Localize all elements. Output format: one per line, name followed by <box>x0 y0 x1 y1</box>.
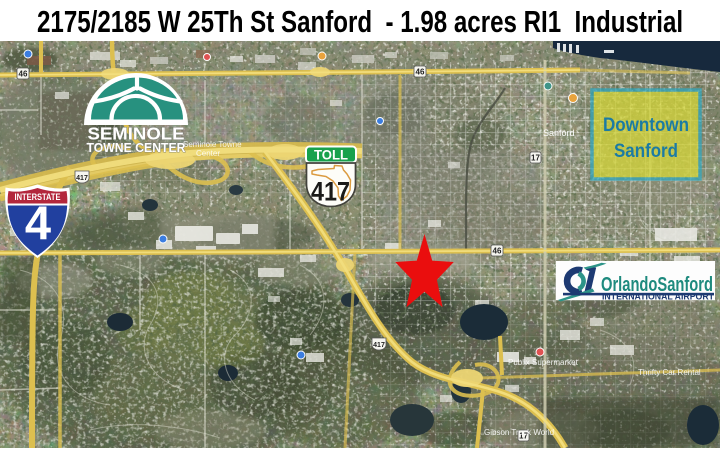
svg-text:4: 4 <box>25 196 51 249</box>
svg-text:Sanford: Sanford <box>543 128 575 138</box>
svg-text:46: 46 <box>19 70 28 79</box>
svg-text:INTERNATIONAL AIRPORT: INTERNATIONAL AIRPORT <box>602 292 714 302</box>
svg-text:17: 17 <box>531 154 540 163</box>
svg-text:TOLL: TOLL <box>314 148 348 163</box>
svg-text:46: 46 <box>416 68 425 77</box>
svg-text:Gibson Truck World: Gibson Truck World <box>484 428 554 437</box>
svg-text:Sanford: Sanford <box>614 140 678 162</box>
svg-text:417: 417 <box>373 342 385 349</box>
svg-text:Publix Supermarket: Publix Supermarket <box>508 358 579 367</box>
svg-text:46: 46 <box>493 247 502 256</box>
svg-text:Center: Center <box>196 149 220 158</box>
svg-text:417: 417 <box>311 177 350 207</box>
svg-text:Downtown: Downtown <box>603 114 689 136</box>
svg-text:417: 417 <box>76 175 88 182</box>
svg-text:Seminole Towne: Seminole Towne <box>183 140 242 149</box>
svg-text:TOWNE CENTER: TOWNE CENTER <box>87 140 187 155</box>
svg-text:Thrifty Car Rental: Thrifty Car Rental <box>638 368 701 377</box>
